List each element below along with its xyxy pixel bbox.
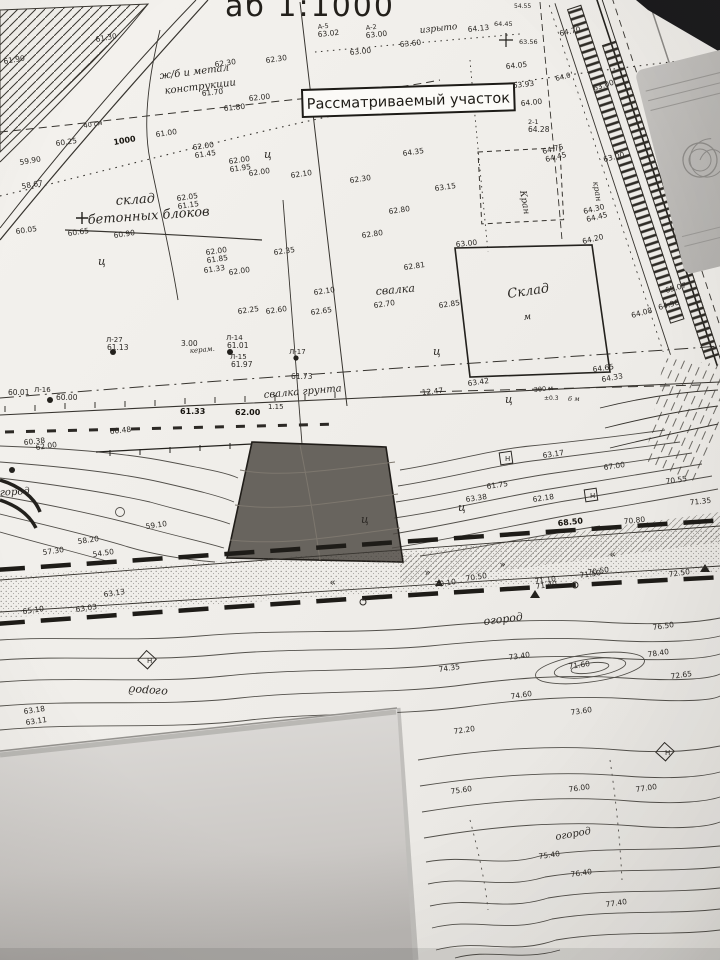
- map-photo-canvas: аб 1:1000 Рассматриваемый участок 61.306…: [0, 0, 720, 960]
- photo-bottom-shade: [0, 948, 720, 960]
- photo-of-topographic-plan: { "photo": { "background_color": "#1b1b1…: [0, 0, 720, 960]
- photo-vignette: [0, 0, 720, 960]
